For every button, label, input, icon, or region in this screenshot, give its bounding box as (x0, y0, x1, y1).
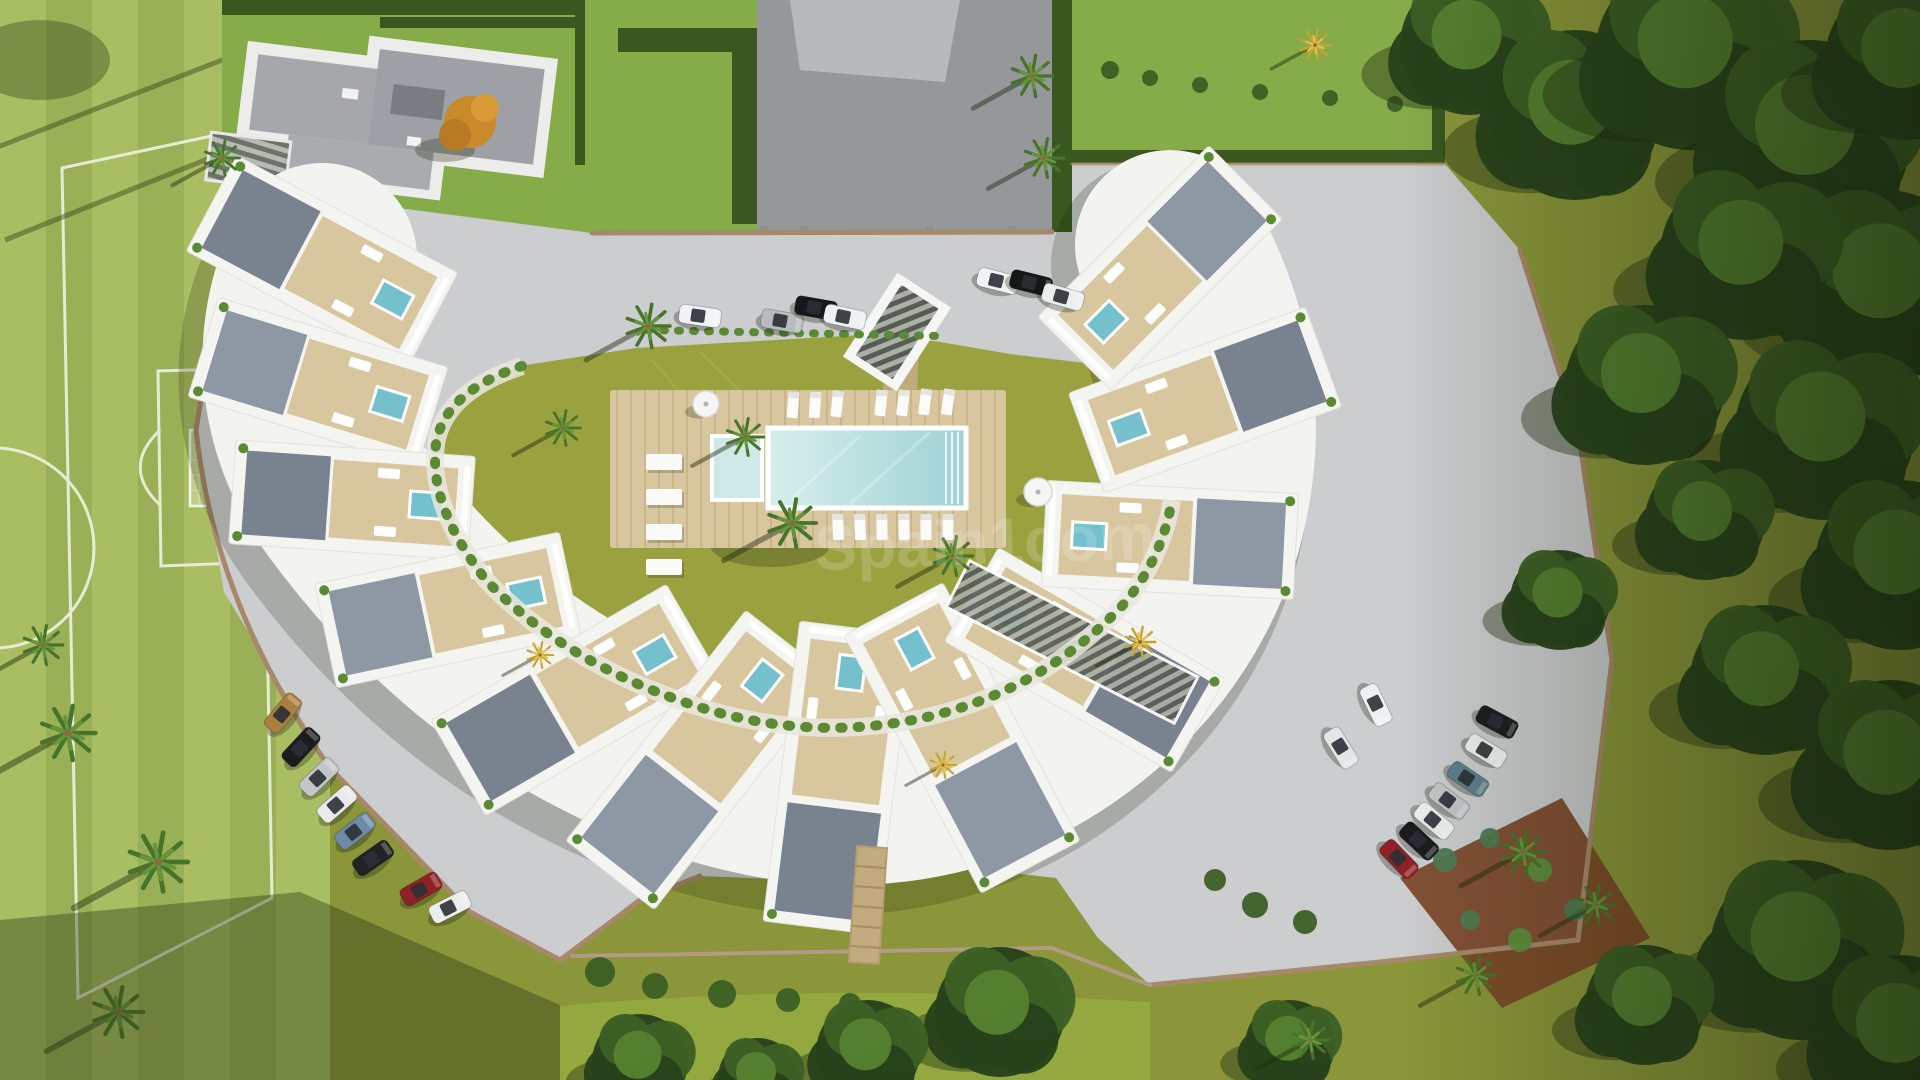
terrace-lounger (374, 526, 397, 538)
bush (1204, 869, 1226, 891)
hedge-row (222, 0, 590, 15)
bush (585, 957, 615, 987)
tree-shade-overlay (1400, 0, 1920, 1080)
bush (1252, 84, 1268, 100)
hedge-divider (1052, 0, 1072, 232)
bush (1322, 90, 1338, 106)
neighbor-driveway-lot (757, 0, 1052, 236)
aerial-render-stage: Spain1com (0, 0, 1920, 1080)
bush (776, 988, 800, 1012)
bush (1142, 70, 1158, 86)
bench-slab (646, 559, 682, 575)
watermark-text: Spain1com (813, 500, 1157, 584)
neighbor-garden (585, 0, 757, 232)
bench-slab (646, 489, 682, 505)
sun-lounger (809, 392, 822, 419)
bench-slab (646, 524, 682, 540)
gravel-roof (329, 573, 433, 675)
swimming-pool (768, 428, 966, 508)
gravel-roof (1193, 498, 1286, 589)
bush (1242, 892, 1268, 918)
bush (708, 980, 736, 1008)
bush (1293, 910, 1317, 934)
bush (1101, 61, 1119, 79)
hedge-row (380, 17, 585, 28)
terrace-lounger (378, 468, 401, 480)
aerial-render: Spain1com (0, 0, 1920, 1080)
sun-lounger (787, 392, 800, 419)
bench-slab (646, 454, 682, 470)
gravel-roof (241, 451, 331, 541)
skylight (390, 84, 445, 120)
bush (1192, 77, 1208, 93)
bush (642, 973, 668, 999)
